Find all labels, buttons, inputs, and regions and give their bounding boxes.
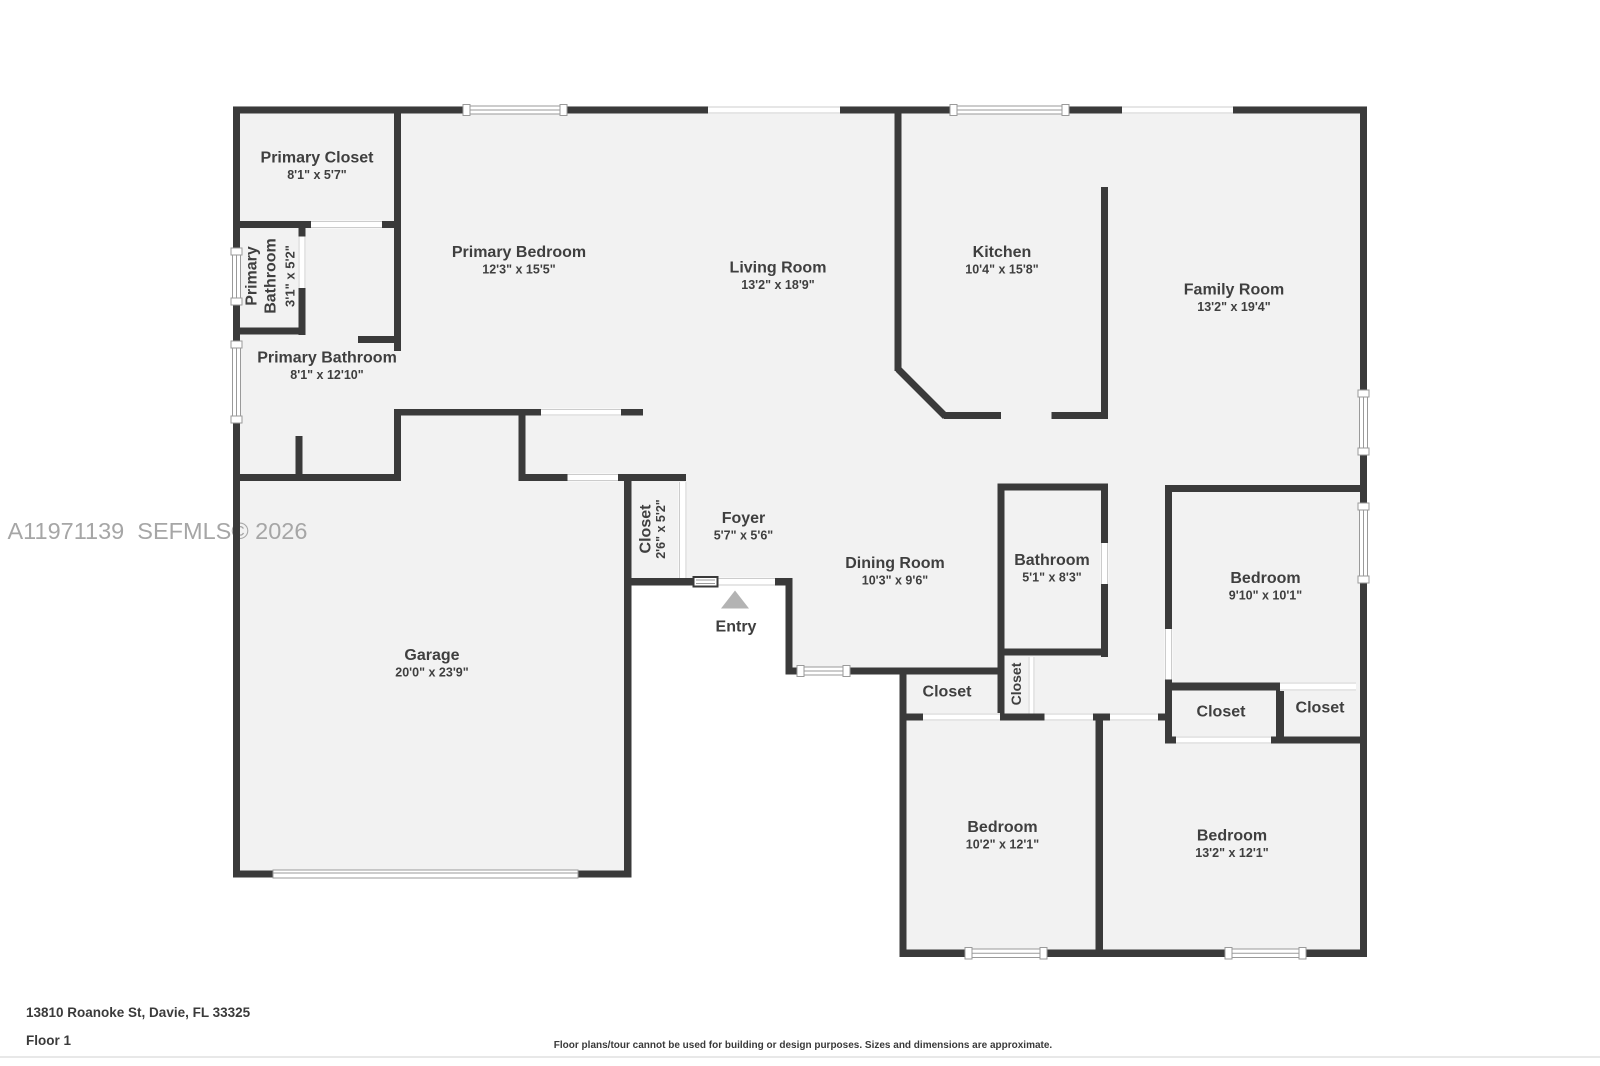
svg-text:Primary Bedroom: Primary Bedroom [452,244,586,261]
svg-text:3'1" x 5'2": 3'1" x 5'2" [283,245,298,307]
svg-text:Garage: Garage [404,647,459,664]
svg-text:20'0" x 23'9": 20'0" x 23'9" [395,666,468,680]
svg-text:13'2" x 19'4": 13'2" x 19'4" [1197,300,1270,314]
svg-text:13'2" x 12'1": 13'2" x 12'1" [1195,846,1268,860]
svg-text:10'4" x 15'8": 10'4" x 15'8" [965,263,1038,277]
svg-text:Living Room: Living Room [730,260,827,277]
svg-text:A11971139 SEFMLS© 2026: A11971139 SEFMLS© 2026 [8,518,308,544]
svg-text:Bedroom: Bedroom [1197,828,1267,845]
svg-text:Closet: Closet [638,504,655,554]
svg-text:10'3" x 9'6": 10'3" x 9'6" [862,574,929,588]
svg-text:Closet: Closet [1296,700,1346,717]
svg-text:13'2" x 18'9": 13'2" x 18'9" [741,278,814,292]
svg-text:Foyer: Foyer [722,510,766,527]
svg-text:Bedroom: Bedroom [967,819,1037,836]
svg-text:Floor 1: Floor 1 [26,1033,71,1048]
svg-text:8'1" x 5'7": 8'1" x 5'7" [287,168,347,182]
svg-text:Bathroom: Bathroom [1014,552,1090,569]
svg-text:Entry: Entry [716,619,757,636]
svg-text:Dining Room: Dining Room [845,555,945,572]
svg-text:Primary Bathroom: Primary Bathroom [257,350,397,367]
svg-text:9'10" x 10'1": 9'10" x 10'1" [1229,589,1302,603]
svg-text:Closet: Closet [1197,704,1247,721]
svg-text:Kitchen: Kitchen [973,244,1032,261]
svg-text:13810 Roanoke St, Davie, FL 33: 13810 Roanoke St, Davie, FL 33325 [26,1005,251,1020]
svg-text:5'7" x 5'6": 5'7" x 5'6" [714,529,774,543]
svg-text:Primary: Primary [244,246,261,306]
svg-text:12'3" x 15'5": 12'3" x 15'5" [482,263,555,277]
svg-text:5'1" x 8'3": 5'1" x 8'3" [1022,571,1082,585]
svg-text:Closet: Closet [1008,662,1024,705]
svg-text:Bathroom: Bathroom [263,238,280,314]
svg-text:2'6" x 5'2": 2'6" x 5'2" [654,499,668,559]
svg-text:Bedroom: Bedroom [1230,570,1300,587]
svg-text:8'1" x 12'10": 8'1" x 12'10" [290,368,363,382]
svg-text:Closet: Closet [923,684,973,701]
svg-text:Family Room: Family Room [1184,282,1284,299]
svg-text:Floor plans/tour cannot be use: Floor plans/tour cannot be used for buil… [554,1040,1053,1051]
svg-text:Primary Closet: Primary Closet [261,150,375,167]
svg-text:10'2" x 12'1": 10'2" x 12'1" [966,838,1039,852]
